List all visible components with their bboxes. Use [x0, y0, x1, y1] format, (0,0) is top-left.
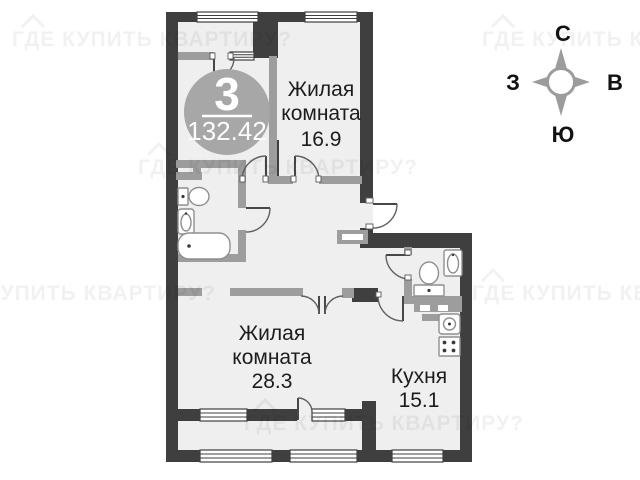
compass-circle	[548, 69, 575, 96]
toilet-bowl	[189, 188, 209, 206]
wall-left	[166, 12, 178, 462]
wall-bath-right-lower	[238, 230, 246, 256]
wc-toilet-bowl	[420, 262, 439, 284]
stove	[439, 337, 460, 356]
kitchen-sink-dot	[448, 323, 451, 326]
jamb	[376, 292, 381, 297]
wall-loggia-bottom-left	[178, 52, 214, 60]
vent-slot-2	[438, 305, 448, 311]
jamb	[316, 176, 321, 182]
window-loggia-top	[197, 12, 258, 22]
room16-label-2: комната	[281, 102, 361, 125]
window-room2-balcony-2	[312, 409, 345, 421]
closet	[337, 230, 368, 244]
wall-hall-room16	[269, 56, 277, 178]
wall-loggia-bottom-2	[272, 450, 290, 462]
window-room16-top	[305, 12, 357, 22]
badge-room-count: 3	[214, 68, 240, 120]
bathtub-drain	[187, 244, 191, 248]
wall-mid-2	[319, 176, 362, 184]
wall-right-upper	[360, 12, 373, 203]
compass-rose: С Ю З В	[506, 21, 623, 147]
room16-label-1: Жилая	[288, 78, 354, 101]
door-entrance	[373, 204, 397, 228]
wall-kitchen-bottom-2	[443, 450, 472, 462]
jamb	[240, 176, 245, 182]
window-balcony-bottom-1	[200, 450, 272, 462]
wc-sink-basin	[448, 254, 459, 273]
compass-west-label: З	[506, 70, 520, 95]
wc-toilet-dot	[427, 289, 430, 292]
wall-hall-bottom	[176, 160, 238, 168]
wall-room2-bottom-1	[166, 409, 200, 421]
wall-wc-bottom	[404, 296, 462, 304]
wall-room2-top-1	[178, 288, 202, 296]
window-room2-balcony-1	[200, 409, 247, 421]
floor-plan-page: 3 132.42 Жилая комната 16.9 Жилая комнат…	[0, 0, 640, 480]
kitchen-label: Кухня	[391, 365, 447, 388]
jamb	[405, 250, 411, 255]
window-kitchen-bottom	[392, 450, 443, 462]
wall-bath-niche-h	[176, 172, 202, 180]
room28-area: 28.3	[252, 370, 293, 393]
jamb	[263, 176, 268, 182]
compass-north-label: С	[555, 21, 571, 46]
wall-room2-bottom-2	[247, 409, 297, 421]
compass-south-label: Ю	[552, 122, 575, 147]
wall-loggia-bottom-1	[166, 450, 200, 462]
stove-burner	[452, 349, 456, 353]
jamb	[228, 53, 233, 59]
stove-burner	[452, 341, 456, 345]
wc-sink-dot	[452, 254, 454, 256]
wall-kitchen-top	[360, 233, 472, 248]
jamb	[291, 176, 296, 182]
jamb	[366, 198, 373, 203]
stove-burner	[443, 349, 447, 353]
floor-plan-svg: 3 132.42 Жилая комната 16.9 Жилая комнат…	[0, 0, 640, 480]
sink-basin	[181, 214, 191, 231]
wall-top-1	[166, 12, 197, 22]
jamb	[405, 275, 411, 280]
compass-east-label: В	[607, 70, 623, 95]
wall-bath-niche-v	[193, 160, 201, 174]
toilet-tank-dot	[181, 195, 184, 198]
wall-loggia-bottom-3	[357, 450, 364, 462]
room28-label-1: Жилая	[239, 322, 305, 345]
jamb	[366, 224, 373, 229]
bathtub	[178, 233, 230, 259]
wall-kitchen-door-step	[352, 288, 378, 302]
wall-mid-1	[268, 176, 293, 184]
room28-label-2: комната	[232, 346, 312, 369]
wall-kitchen-left	[362, 401, 376, 462]
room16-area: 16.9	[301, 128, 342, 151]
stove-burner	[443, 341, 447, 345]
wall-bath-right-upper	[238, 160, 246, 208]
jamb	[210, 53, 215, 59]
kitchen-area: 15.1	[399, 389, 440, 412]
wall-room2-top-2	[230, 288, 303, 296]
vent-slot-1	[420, 305, 430, 311]
sink-dot	[185, 212, 187, 214]
window-balcony-bottom-2	[290, 450, 357, 462]
badge-total-area: 132.42	[187, 116, 267, 146]
wall-room2-bottom-3	[345, 409, 362, 421]
wall-room2-top-3	[342, 288, 354, 298]
closet-slot	[342, 234, 363, 240]
